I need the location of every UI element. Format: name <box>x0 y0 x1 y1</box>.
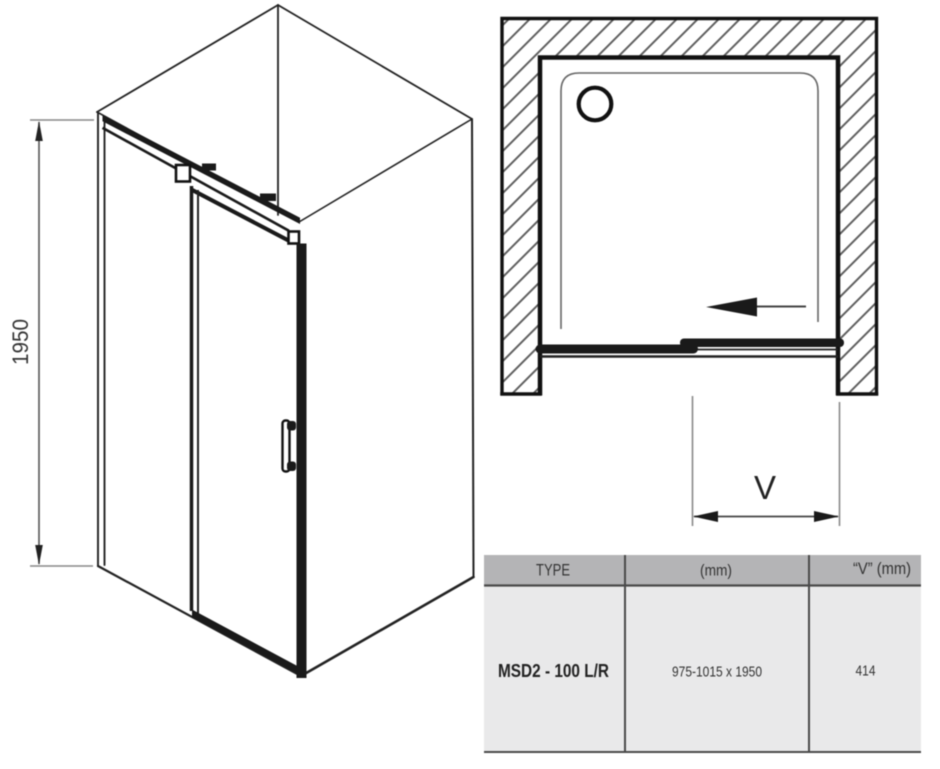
svg-text:V: V <box>754 469 776 506</box>
svg-text:MSD2 - 100 L/R: MSD2 - 100 L/R <box>498 661 609 681</box>
svg-text:1950: 1950 <box>8 319 33 365</box>
svg-text:“V” (mm): “V” (mm) <box>853 559 911 578</box>
svg-text:(mm): (mm) <box>700 563 732 580</box>
svg-text:414: 414 <box>856 663 876 680</box>
svg-text:975-1015 x 1950: 975-1015 x 1950 <box>672 664 762 681</box>
svg-text:TYPE: TYPE <box>536 561 570 580</box>
